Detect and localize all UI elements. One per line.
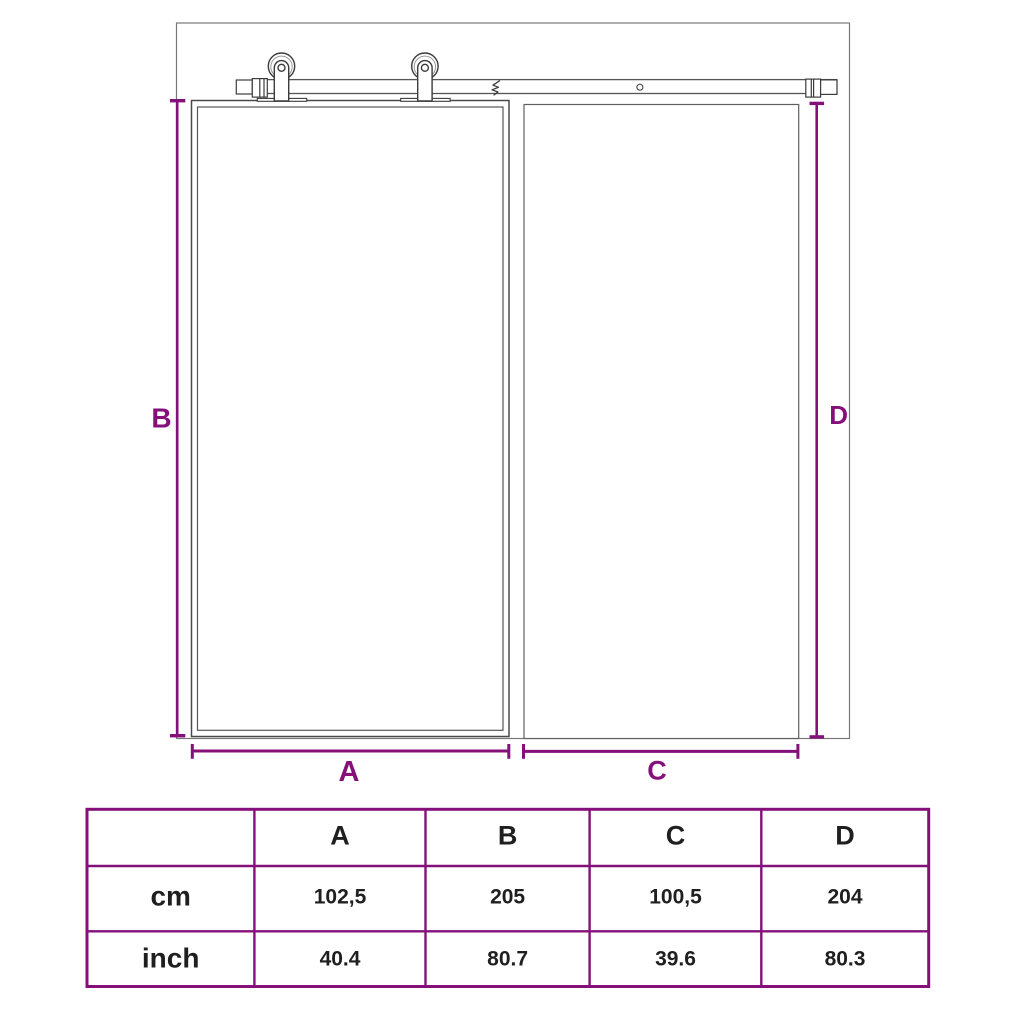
svg-text:80.3: 80.3 <box>825 948 866 971</box>
svg-text:102,5: 102,5 <box>314 886 367 909</box>
svg-text:80.7: 80.7 <box>487 948 528 971</box>
svg-text:205: 205 <box>490 886 525 909</box>
svg-text:204: 204 <box>827 886 862 909</box>
svg-text:B: B <box>498 821 518 851</box>
svg-text:A: A <box>339 756 360 788</box>
svg-text:cm: cm <box>150 880 190 911</box>
svg-text:C: C <box>647 756 667 786</box>
svg-text:B: B <box>151 403 171 434</box>
svg-text:C: C <box>666 821 686 851</box>
svg-text:inch: inch <box>142 943 200 974</box>
svg-text:D: D <box>829 400 848 430</box>
svg-text:100,5: 100,5 <box>649 886 702 909</box>
svg-text:40.4: 40.4 <box>320 948 361 971</box>
svg-text:A: A <box>330 821 350 851</box>
svg-text:D: D <box>835 821 855 851</box>
svg-text:39.6: 39.6 <box>655 948 696 971</box>
